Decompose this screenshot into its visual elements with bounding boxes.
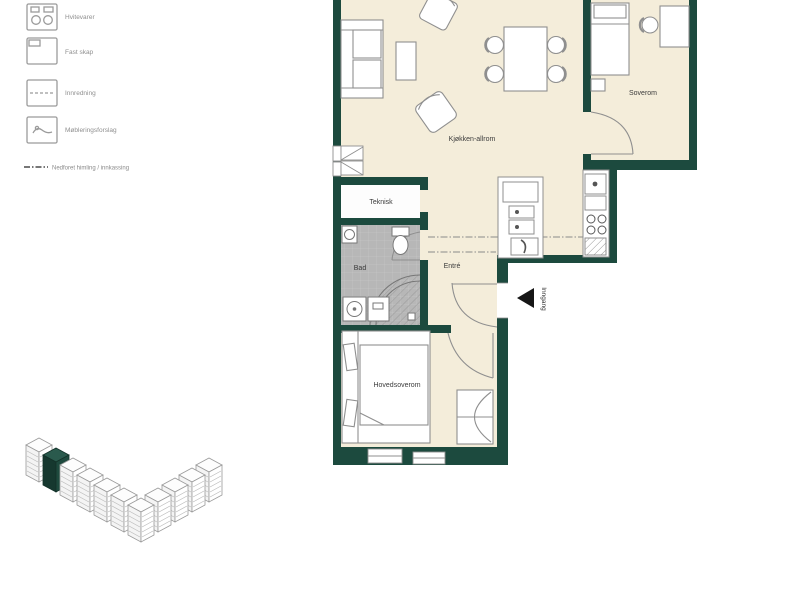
kitchen-counter-right xyxy=(583,170,609,257)
bed-small xyxy=(591,3,629,75)
entrance-label: Inngang xyxy=(540,287,547,311)
fittings-icon xyxy=(27,80,57,106)
label-master-bedroom: Hovedsoverom xyxy=(373,382,420,389)
toilet xyxy=(392,227,409,255)
building-block xyxy=(128,498,154,542)
label-hallway: Entré xyxy=(444,263,461,270)
fixed-cabinet-icon xyxy=(27,38,57,64)
washing-machine xyxy=(343,297,366,321)
floorplan-drawing: Hvitevarer Fast skap Innredning Møblerin… xyxy=(0,0,800,600)
sofa xyxy=(341,20,383,98)
bathroom-sink xyxy=(342,226,357,243)
nightstand xyxy=(591,79,605,91)
desk xyxy=(660,6,689,47)
entrance-arrow-icon xyxy=(517,288,534,308)
legend-label-appliances: Hvitevarer xyxy=(65,14,95,21)
appliances-icon xyxy=(27,4,57,30)
entrance-marker: Inngang xyxy=(517,287,547,311)
furnishing-icon xyxy=(27,117,57,143)
kitchen-island xyxy=(498,177,543,258)
legend: Hvitevarer Fast skap Innredning Møblerin… xyxy=(24,4,129,172)
legend-label-furnishing: Møbleringsforslag xyxy=(65,127,117,134)
label-bedroom2: Soverom xyxy=(629,90,657,97)
coffee-table xyxy=(396,42,416,80)
dining-table xyxy=(504,27,547,91)
legend-note: Nedforet himling / innkassing xyxy=(52,166,129,172)
label-technical: Teknisk xyxy=(369,199,393,206)
floorplan-page: Hvitevarer Fast skap Innredning Møblerin… xyxy=(0,0,800,600)
label-bathroom: Bad xyxy=(354,265,367,272)
floor-plan: Inngang Kjøkken-allrom Soverom Teknisk B… xyxy=(333,0,697,465)
desk-chair xyxy=(642,17,658,33)
legend-label-fittings: Innredning xyxy=(65,90,96,97)
wardrobe xyxy=(457,390,493,444)
legend-label-fixed-cabinet: Fast skap xyxy=(65,49,94,56)
dryer xyxy=(368,297,389,321)
label-kitchen-living: Kjøkken-allrom xyxy=(449,136,496,143)
site-overview-diagram xyxy=(26,438,222,542)
